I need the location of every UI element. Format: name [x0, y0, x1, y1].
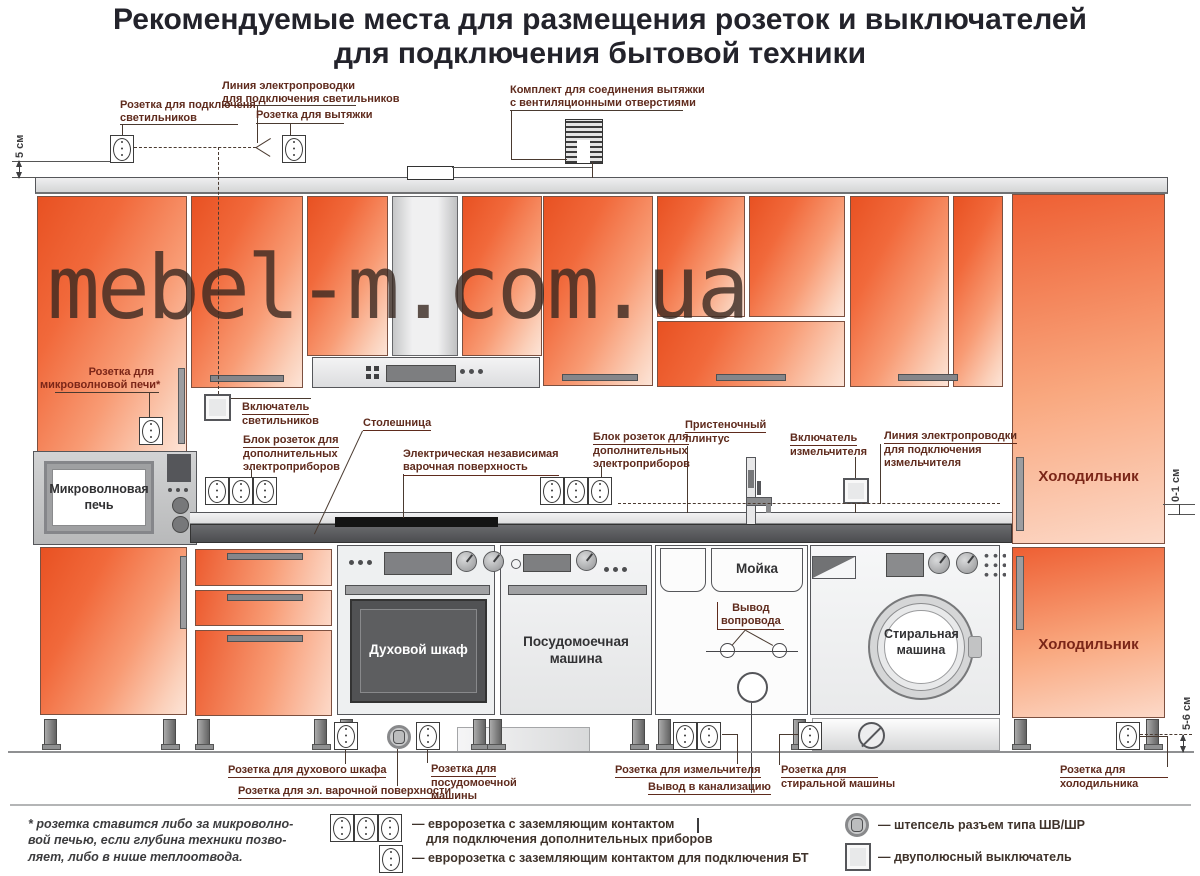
- socket-face: [1119, 725, 1137, 748]
- leader-line: [122, 124, 123, 135]
- leader-line: [722, 734, 738, 735]
- socket-face: [676, 725, 694, 748]
- grinder-switch-icon: [843, 478, 869, 504]
- fridge-upper-label: Холодильник: [1012, 468, 1165, 485]
- dimension-0-1cm: 0-1 см: [1170, 469, 1182, 502]
- leader-line: [592, 162, 593, 178]
- label-socket-block-2: Блок розеток для дополнительных электроп…: [593, 431, 690, 471]
- cabinet-leg: [658, 719, 671, 749]
- drawer-3: [195, 630, 332, 716]
- leader-line: [55, 392, 159, 393]
- label-lights-wiring: Линия электропроводки для подключения св…: [222, 80, 400, 106]
- socket-face: [382, 848, 400, 871]
- socket-block-1-icon: [205, 477, 277, 505]
- washer-door-latch: [968, 636, 982, 658]
- microwave-vent: [167, 454, 191, 482]
- cabinet-leg: [314, 719, 327, 749]
- legend-switch: — двуполюсный выключатель: [878, 850, 1072, 864]
- microwave-socket-icon: [139, 417, 163, 445]
- hood-indicator-dots: [460, 369, 465, 374]
- upper-door-9: [953, 196, 1003, 387]
- socket-face: [540, 477, 564, 505]
- sewer-outlet-icon: [737, 672, 768, 703]
- socket-face: [588, 477, 612, 505]
- extension-line: [1168, 514, 1195, 515]
- socket-face: [673, 722, 697, 750]
- oven-socket-icon: [334, 722, 358, 750]
- leader-line: [345, 750, 346, 764]
- dimension-arrow: [16, 160, 22, 167]
- hood-socket-icon: [282, 135, 306, 163]
- hood-display: [386, 365, 456, 382]
- lights-switch-icon: [204, 394, 231, 421]
- legend-switch-icon: [845, 843, 871, 871]
- no-socket-icon: [858, 722, 885, 749]
- socket-face: [378, 814, 402, 842]
- legend-euro-single: — евророзетка с заземляющим контактом дл…: [412, 851, 809, 865]
- cabinet-leg: [163, 719, 176, 749]
- legend-triple-socket-icon: [330, 814, 402, 842]
- lights-socket-icon: [110, 135, 134, 163]
- extension-line: [12, 161, 110, 162]
- label-oven-socket: Розетка для духового шкафа: [228, 764, 386, 778]
- label-socket-block-1: Блок розеток для дополнительных электроп…: [243, 434, 340, 474]
- label-sewer-outlet: Вывод в канализацию: [648, 781, 771, 795]
- socket-face: [232, 480, 250, 503]
- legend-euro-block-line2: для подключения дополнительных приборов: [426, 832, 713, 846]
- hood-buttons: [366, 366, 371, 371]
- label-vent-kit: Комплект для соединения вытяжки с вентил…: [510, 84, 705, 110]
- label-hood-socket: Розетка для вытяжки: [256, 109, 372, 122]
- leader-line: [290, 123, 291, 135]
- socket-face: [330, 814, 354, 842]
- faucet-detail: [748, 470, 754, 488]
- door-handle: [562, 374, 638, 381]
- label-lights-switch: Включатель светильников: [242, 401, 319, 428]
- cooktop-surface: [335, 517, 498, 527]
- socket-face: [113, 138, 131, 161]
- hood-duct: [407, 166, 454, 180]
- label-dishwasher-socket: Розетка для посудомоечной машины: [431, 763, 517, 803]
- leader-line: [256, 123, 344, 124]
- door-handle: [210, 375, 284, 382]
- washer-display: [886, 553, 924, 577]
- socket-face: [567, 480, 585, 503]
- socket-face: [591, 480, 609, 503]
- legend-plug-icon: [845, 813, 869, 837]
- socket-face: [697, 722, 721, 750]
- microwave-window: Микроволновая печь: [52, 469, 146, 526]
- sink-door-panel: [660, 548, 706, 592]
- oven-knob: [483, 551, 504, 572]
- leader-line: [511, 110, 512, 160]
- socket-face: [285, 138, 303, 161]
- socket-face: [419, 725, 437, 748]
- socket-face: [381, 817, 399, 840]
- label-grinder-wiring: Линия электропроводки для подключения из…: [884, 430, 1017, 470]
- socket-face: [256, 480, 274, 503]
- legend-single-socket-icon: [379, 845, 403, 873]
- faucet-spout-tip: [766, 503, 771, 513]
- leader-line: [737, 734, 738, 764]
- cabinet-leg: [1014, 719, 1027, 749]
- leader-line: [427, 750, 428, 763]
- socket-face: [253, 477, 277, 505]
- grinder-socket-icon: [673, 722, 721, 750]
- cornice: [35, 177, 1168, 194]
- cabinet-leg: [489, 719, 502, 749]
- dishwasher-button: [511, 559, 521, 569]
- wiring-line: [134, 147, 256, 148]
- leader-line: [1167, 736, 1168, 767]
- washer-detergent-drawer: [812, 556, 856, 579]
- sink-label: Мойка: [711, 561, 803, 576]
- fridge-upper-door: [1012, 194, 1165, 544]
- upper-door-8: [850, 196, 949, 387]
- door-handle: [716, 374, 786, 381]
- fridge-lower-label: Холодильник: [1012, 636, 1165, 653]
- label-cooktop: Электрическая независимая варочная повер…: [403, 448, 559, 476]
- legend-separator: [10, 804, 1191, 806]
- label-water-outlet: Вывод вопровода: [717, 602, 784, 630]
- leader-line: [511, 159, 567, 160]
- fridge-socket-icon: [1116, 722, 1140, 750]
- door-handle: [178, 368, 185, 444]
- floor-line: [8, 751, 1194, 753]
- socket-face: [333, 817, 351, 840]
- label-microwave-socket: Розетка для микроволновой печи*: [40, 366, 154, 392]
- drawer-handle: [227, 635, 303, 642]
- dishwasher-socket-icon: [416, 722, 440, 750]
- microwave-button: [172, 497, 189, 514]
- drawer-handle: [227, 553, 303, 560]
- leader-line: [779, 734, 780, 765]
- oven-indicator-dots: [349, 560, 354, 565]
- duct-line: [452, 167, 592, 168]
- dimension-5-6cm: 5-6 см: [1181, 697, 1193, 730]
- fridge-handle: [1016, 556, 1024, 630]
- microwave-dots: [168, 488, 172, 492]
- dimension-5cm: 5 см: [14, 135, 26, 158]
- socket-face: [208, 480, 226, 503]
- socket-face: [564, 477, 588, 505]
- socket-face: [801, 725, 819, 748]
- socket-block-2-icon: [540, 477, 612, 505]
- washer-knob: [956, 552, 978, 574]
- base-door-left: [40, 547, 187, 715]
- label-washer-socket: Розетка для стиральной машины: [781, 764, 878, 791]
- socket-face: [142, 420, 160, 443]
- cabinet-leg: [632, 719, 645, 749]
- microwave-label: Микроволновая печь: [49, 482, 148, 513]
- dishwasher-label: Посудомоечная машина: [505, 634, 647, 668]
- leader-line: [1140, 736, 1168, 737]
- leader-line: [403, 474, 404, 518]
- cabinet-leg: [473, 719, 486, 749]
- oven-handle: [345, 585, 490, 595]
- dimension-line: [1179, 504, 1180, 515]
- leader-line: [149, 392, 150, 417]
- dishwasher-display: [523, 554, 571, 572]
- oven-label: Духовой шкаф: [350, 642, 487, 657]
- label-wall-plinth: Пристеночный плинтус: [685, 419, 766, 446]
- leader-line: [510, 110, 683, 111]
- washer-label: Стиральная машина: [884, 627, 958, 658]
- vent-duct-icon: [565, 119, 603, 164]
- label-grinder-socket: Розетка для измельчителя: [615, 764, 761, 778]
- countertop-back-edge: [190, 512, 1012, 524]
- dimension-arrow: [1180, 734, 1186, 741]
- dishwasher-knob: [576, 550, 597, 571]
- legend-plug: — штепсель разъем типа ШВ/ШР: [878, 818, 1085, 832]
- leader-line: [880, 444, 881, 504]
- legend-euro-block-line1: — евророзетка с заземляющим контактом: [412, 817, 674, 831]
- door-handle: [898, 374, 958, 381]
- leader-line: [231, 398, 311, 399]
- leader-line: [779, 734, 798, 735]
- socket-face: [205, 477, 229, 505]
- cabinet-leg: [44, 719, 57, 749]
- drawer-handle: [227, 594, 303, 601]
- fridge-lower-door: [1012, 547, 1165, 718]
- label-fridge-socket: Розетка для холодильника: [1060, 764, 1168, 791]
- kitchen-wiring-diagram: Рекомендуемые места для размещения розет…: [0, 0, 1200, 876]
- switch-tick: [855, 504, 856, 513]
- washer-plinth: [812, 718, 1000, 751]
- washer-knob: [928, 552, 950, 574]
- dimension-arrow: [1180, 746, 1186, 753]
- door-handle: [180, 556, 187, 629]
- grinder-wiring-line: [618, 503, 1000, 504]
- socket-face: [700, 725, 718, 748]
- vent-duct-notch: [577, 140, 590, 163]
- washer-button-grid: [981, 550, 1006, 578]
- footnote: * розетка ставится либо за микроволно- в…: [28, 816, 293, 865]
- sewer-line: [751, 703, 752, 793]
- title-line2: для подключения бытовой техники: [0, 37, 1200, 71]
- title-line1: Рекомендуемые места для размещения розет…: [0, 3, 1200, 37]
- water-symbol-line: [706, 651, 798, 652]
- socket-face: [354, 814, 378, 842]
- dishwasher-dots: [604, 567, 609, 572]
- socket-face: [543, 480, 561, 503]
- page-title: Рекомендуемые места для размещения розет…: [0, 3, 1200, 70]
- upper-door-7: [749, 196, 845, 317]
- faucet: [746, 457, 756, 532]
- socket-face: [337, 725, 355, 748]
- cooktop-plug-icon: [387, 725, 411, 749]
- legend-tick: [697, 818, 699, 833]
- cabinet-leg: [197, 719, 210, 749]
- label-countertop: Столешница: [363, 417, 431, 431]
- oven-knob: [456, 551, 477, 572]
- socket-face: [229, 477, 253, 505]
- washer-socket-icon: [798, 722, 822, 750]
- wiring-fork: [255, 147, 270, 157]
- watermark: mebel-m.com.ua: [47, 236, 747, 339]
- dimension-arrow: [16, 172, 22, 179]
- label-grinder-switch: Включатель измельчителя: [790, 432, 867, 459]
- leader-line: [855, 457, 856, 478]
- oven-display: [384, 552, 452, 575]
- label-cooktop-socket: Розетка для эл. варочной поверхности: [238, 785, 451, 799]
- faucet-handle: [757, 481, 761, 495]
- microwave-button: [172, 516, 189, 533]
- socket-face: [357, 817, 375, 840]
- dishwasher-handle: [508, 585, 647, 595]
- leader-line: [397, 749, 398, 786]
